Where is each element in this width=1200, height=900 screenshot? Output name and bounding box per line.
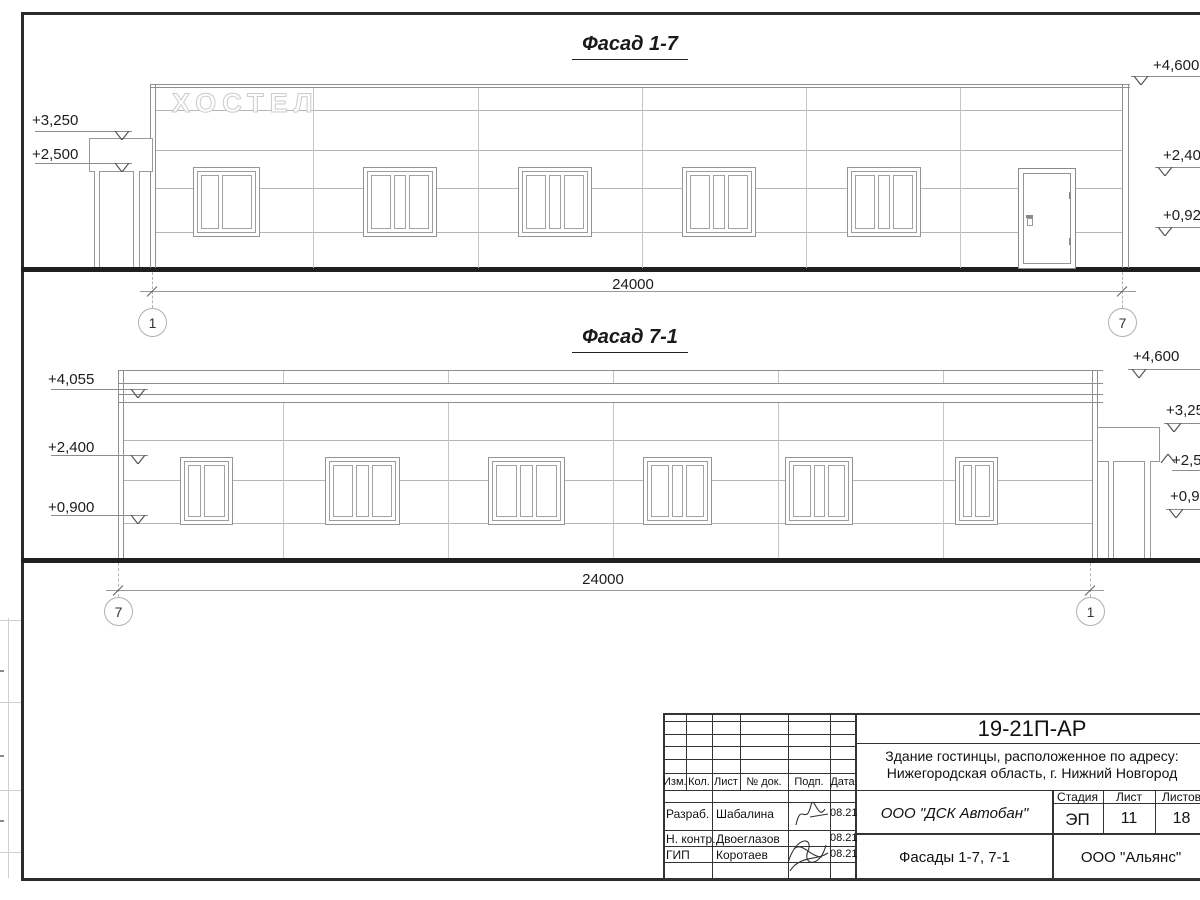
title-block-grid <box>663 734 855 735</box>
window <box>488 457 565 525</box>
signature <box>782 827 832 877</box>
listov-value: 18 <box>1155 810 1200 828</box>
fascia-line <box>118 402 1103 403</box>
stage-value: ЭП <box>1052 810 1103 830</box>
window-pane <box>222 175 252 229</box>
window-pane <box>536 465 557 517</box>
elevation-arrow-icon <box>1131 369 1147 378</box>
window-frame <box>789 461 849 521</box>
window-pane <box>394 175 406 229</box>
wall-corner <box>1128 84 1129 268</box>
column-header-list: Лист <box>712 776 740 788</box>
signer-date: 08.21 <box>830 848 855 860</box>
title-block-grid <box>663 759 855 760</box>
dimension-value: 24000 <box>598 276 668 293</box>
wall-corner <box>118 370 119 558</box>
axis-number: 1 <box>1087 604 1095 620</box>
grid-axis-bubble: 1 <box>138 308 167 337</box>
window-pane <box>333 465 353 517</box>
object-address-line2: Нижегородская область, г. Нижний Новгоро… <box>857 765 1200 781</box>
fascia-joint <box>778 371 779 383</box>
window <box>363 167 437 237</box>
fascia-joint <box>613 371 614 383</box>
stage-label: Стадия <box>1052 790 1103 804</box>
roof-line <box>150 84 1130 85</box>
fascia-joint <box>943 371 944 383</box>
title-block-grid <box>663 746 855 747</box>
window-pane <box>496 465 517 517</box>
window-pane <box>855 175 875 229</box>
window-pane <box>814 465 825 517</box>
margin-stamp-line <box>8 618 9 878</box>
sheet-name: Фасады 1-7, 7-1 <box>857 849 1052 866</box>
window-pane <box>526 175 546 229</box>
column-header-ndok: № док. <box>740 776 788 788</box>
margin-stamp-line <box>0 790 21 791</box>
window-frame <box>184 461 229 521</box>
window-pane <box>893 175 913 229</box>
window-frame <box>851 171 917 233</box>
elevation-arrow-icon <box>114 131 130 140</box>
window-pane <box>878 175 890 229</box>
window <box>682 167 756 237</box>
fascia-joint <box>283 371 284 383</box>
panel-joint <box>156 188 1122 189</box>
door-leaf <box>1023 173 1071 264</box>
window <box>193 167 260 237</box>
grid-axis-bubble: 7 <box>1108 308 1137 337</box>
elevation-value: +3,250 <box>32 112 78 129</box>
column-header-izm: Изм. <box>663 776 686 788</box>
elevation-arrow-icon <box>114 163 130 172</box>
wall-corner <box>150 84 151 268</box>
signer-name: Шабалина <box>716 807 774 821</box>
canopy-post <box>133 171 140 267</box>
window-pane <box>520 465 533 517</box>
roof-line <box>118 370 1103 371</box>
canopy-post <box>1144 461 1151 558</box>
wall-corner <box>155 84 156 268</box>
elevation-value: +4,055 <box>48 371 94 388</box>
dimension-line <box>106 590 1104 591</box>
window-pane <box>686 465 704 517</box>
panel-joint <box>778 403 779 558</box>
wall-corner <box>1092 370 1093 558</box>
window-pane <box>356 465 369 517</box>
window-frame <box>959 461 994 521</box>
window-pane <box>651 465 669 517</box>
window-pane <box>372 465 392 517</box>
elevation-value: +2,400 <box>48 439 94 456</box>
panel-joint <box>943 403 944 558</box>
frame-left <box>21 12 24 881</box>
window <box>518 167 592 237</box>
window-frame <box>686 171 752 233</box>
elevation-arrow-icon <box>130 455 146 464</box>
panel-joint <box>124 523 1092 524</box>
window <box>643 457 712 525</box>
entrance-canopy <box>1097 427 1160 462</box>
document-code: 19-21П-АР <box>857 716 1200 742</box>
axis-extension <box>118 563 119 597</box>
canopy-post <box>94 171 100 267</box>
signer-role: Н. контр. <box>666 832 716 846</box>
window-pane <box>963 465 972 517</box>
wall-corner <box>1122 84 1123 268</box>
elevation-arrow-icon <box>1157 167 1173 176</box>
elevation-arrow-icon <box>1133 76 1149 85</box>
margin-stamp-text-fragment <box>0 820 4 822</box>
elevation-value: +0,900 <box>48 499 94 516</box>
hostel-sign: ХОСТЕЛ <box>172 88 319 119</box>
title-block-border <box>663 713 1200 715</box>
axis-number: 7 <box>1119 315 1127 331</box>
window <box>955 457 998 525</box>
margin-stamp-line <box>0 620 21 621</box>
elevation-value: +0,920 <box>1163 207 1200 224</box>
signer-name: Коротаев <box>716 848 768 862</box>
list-value: 11 <box>1103 810 1155 828</box>
elevation-value: +4,600 <box>1133 348 1179 365</box>
window-pane <box>564 175 584 229</box>
window-pane <box>728 175 748 229</box>
signer-date: 08.21 <box>830 832 855 844</box>
contractor-name: ООО "Альянс" <box>1054 849 1200 866</box>
signature <box>792 797 830 829</box>
panel-joint <box>448 403 449 558</box>
window-pane <box>672 465 683 517</box>
panel-joint <box>613 403 614 558</box>
door-handle-icon <box>1026 215 1033 218</box>
title-block-border <box>663 878 1200 880</box>
fascia-joint <box>448 371 449 383</box>
window-pane <box>201 175 219 229</box>
signer-date: 08.21 <box>830 807 855 819</box>
title-block-border <box>663 713 665 880</box>
window <box>180 457 233 525</box>
fascia-line <box>118 394 1103 395</box>
window-pane <box>828 465 846 517</box>
elevation-leader <box>1172 470 1200 471</box>
window-pane <box>188 465 201 517</box>
elevation-value: +2,400 <box>1163 147 1200 164</box>
signer-role: Разраб. <box>666 807 709 821</box>
elevation-arrow-icon <box>130 515 146 524</box>
panel-joint <box>124 440 1092 441</box>
column-header-podp: Подп. <box>788 776 830 788</box>
door-hinge-icon <box>1069 238 1071 245</box>
column-header-data: Дата <box>830 776 855 788</box>
facade-7-1-title: Фасад 7-1 <box>520 326 740 353</box>
axis-number: 1 <box>149 315 157 331</box>
margin-stamp-text-fragment <box>0 755 4 757</box>
ground-line <box>21 558 1200 563</box>
window-pane <box>204 465 225 517</box>
title-block-grid <box>663 721 855 722</box>
window <box>847 167 921 237</box>
window-pane <box>690 175 710 229</box>
wall-corner <box>123 370 124 558</box>
panel-joint <box>156 150 1122 151</box>
panel-joint <box>806 88 807 268</box>
margin-stamp-text-fragment <box>0 670 4 672</box>
panel-joint <box>283 403 284 558</box>
wall-corner <box>1097 370 1098 558</box>
signer-role: ГИП <box>666 848 690 862</box>
window-frame <box>197 171 256 233</box>
object-address-line1: Здание гостинцы, расположенное по адресу… <box>857 748 1200 764</box>
frame-top <box>21 12 1200 15</box>
window-frame <box>367 171 433 233</box>
elevation-arrow-icon <box>1157 227 1173 236</box>
title-block-grid <box>855 743 1200 744</box>
window-pane <box>371 175 391 229</box>
window-pane <box>409 175 429 229</box>
window-pane <box>549 175 561 229</box>
signer-name: Двоеглазов <box>716 832 780 846</box>
facade-1-7-title: Фасад 1-7 <box>520 33 740 60</box>
elevation-arrow-icon <box>1166 423 1182 432</box>
window-frame <box>647 461 708 521</box>
door-hinge-icon <box>1069 192 1071 199</box>
column-header-kol: Кол. <box>686 776 712 788</box>
elevation-arrow-icon <box>1168 509 1184 518</box>
axis-number: 7 <box>115 604 123 620</box>
elevation-value: +3,250 <box>1166 402 1200 419</box>
elevation-value: +2,500 <box>32 146 78 163</box>
panel-joint <box>478 88 479 268</box>
elevation-value: +2,500 <box>1172 452 1200 469</box>
roof-line <box>118 383 1103 384</box>
canopy-post <box>1108 461 1114 558</box>
margin-stamp-line <box>0 702 21 703</box>
window <box>785 457 853 525</box>
elevation-value: +4,600 <box>1153 57 1199 74</box>
axis-extension <box>1090 563 1091 597</box>
panel-joint <box>124 480 1092 481</box>
title-block-grid <box>855 833 1200 835</box>
title-block-grid <box>663 773 855 774</box>
facade-7-1-title-text: Фасад 7-1 <box>572 326 688 353</box>
window-frame <box>492 461 561 521</box>
facade-1-7-title-text: Фасад 1-7 <box>572 33 688 60</box>
list-label: Лист <box>1103 790 1155 804</box>
design-organization: ООО "ДСК Автобан" <box>857 805 1052 822</box>
panel-joint <box>642 88 643 268</box>
grid-axis-bubble: 1 <box>1076 597 1105 626</box>
listov-label: Листов <box>1155 790 1200 804</box>
grid-axis-bubble: 7 <box>104 597 133 626</box>
window-pane <box>975 465 990 517</box>
elevation-value: +0,920 <box>1170 488 1200 505</box>
elevation-arrow-icon <box>130 389 146 398</box>
window-frame <box>329 461 396 521</box>
window-pane <box>793 465 811 517</box>
entrance-door <box>1018 168 1076 269</box>
panel-joint <box>960 88 961 268</box>
window-pane <box>713 175 725 229</box>
panel-joint <box>156 232 1122 233</box>
window-frame <box>522 171 588 233</box>
title-block-grid <box>712 713 713 880</box>
window <box>325 457 400 525</box>
drawing-sheet: Фасад 1-7 ХОСТЕЛ <box>0 0 1200 900</box>
margin-stamp-line <box>0 852 21 853</box>
dimension-value: 24000 <box>568 571 638 588</box>
